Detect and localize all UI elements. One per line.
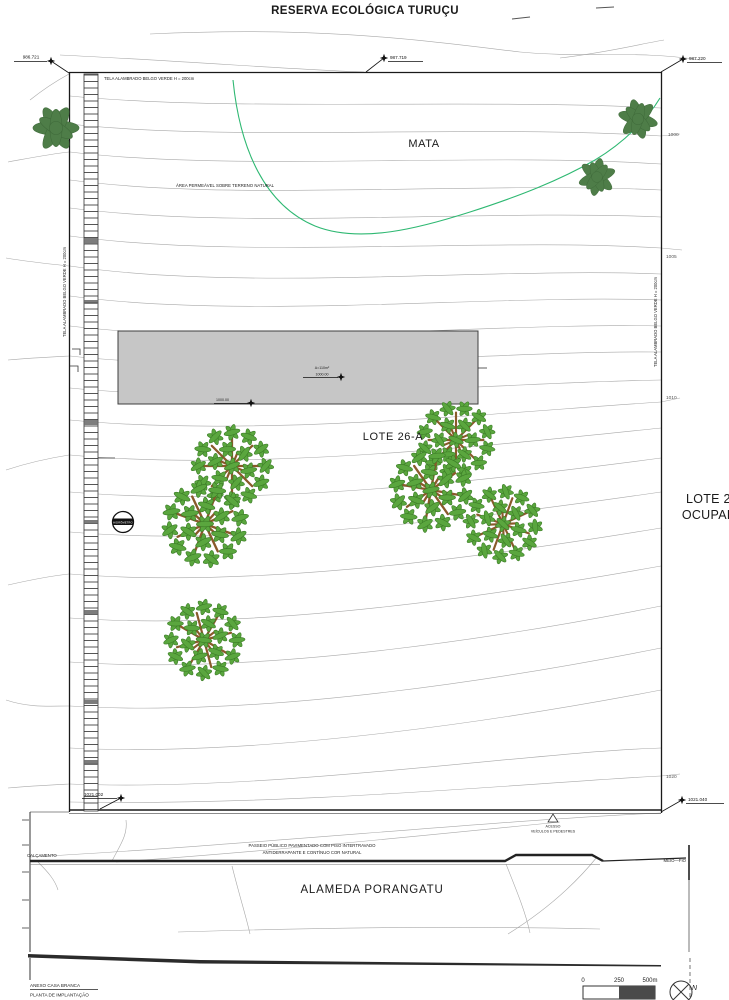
permeable-area-label: ÁREA PERMEÁVEL SOBRE TERRENO NATURAL [176,183,275,188]
canopy-trees [144,379,560,699]
contour-label-1005: 1005 [666,254,677,260]
vegetation-limit-line [233,80,660,234]
lote-25-label-line2: OCUPADO [682,508,729,522]
contour-elevation-labels: 1000 1005 1010 1020 [666,132,679,780]
sidewalk-note-line2: ANTIDERRAPANTE E CONTÍNUO COR NATURAL [263,850,362,855]
water-meter-symbol: HIDRÔMETRO [113,512,134,533]
building-area-label: A=110m² [315,366,330,370]
site-plan-drawing: A=110m² 1000.00 1000.00 HIDRÔMETRO 986.7… [0,0,729,1000]
border-dashes [512,7,614,19]
contour-label-1000: 1000 [668,132,679,138]
road-edge-wedge [28,954,661,967]
survey-label-top-mid: 987.719 [390,55,407,60]
curb-line [30,855,603,861]
access-label-line2: VEÍCULOS E PEDESTRES [531,830,576,834]
access-triangle-icon [548,814,558,822]
contour-label-1010: 1010 [666,395,677,401]
street-name-label: ALAMEDA PORANGATU [300,884,443,896]
scale-bar: 0 250 500m [581,978,657,999]
street-zone: ACESSO VEÍCULOS E PEDESTRES PASSEIO PÚBL… [22,812,690,998]
contour-label-1020: 1020 [666,774,677,780]
north-arrow-icon: N [670,981,698,1000]
building-level-label: 1000.00 [316,373,329,377]
tree-icon [33,104,79,151]
survey-label-top-left: 986.721 [23,55,40,60]
survey-label-top-right: 987.220 [689,56,706,61]
scale-zero-label: 0 [581,978,585,984]
fence-label-left: TELA ALAMBRADO BELGO VERDE H = 200cm [62,246,67,337]
drawing-title: RESERVA ECOLÓGICA TURUÇU [271,4,459,17]
north-letter: N [692,985,698,992]
site-plan-canvas: A=110m² 1000.00 1000.00 HIDRÔMETRO 986.7… [0,0,729,1000]
access-label-line1: ACESSO [546,825,561,829]
title-block-line2: PLANTA DE IMPLANTAÇÃO [30,992,89,998]
calcamento-label: CALÇAMENTO [27,853,57,858]
lote-25-label-line1: LOTE 25 [686,492,729,506]
title-block: ANEXO CASA BRANCA PLANTA DE IMPLANTAÇÃO [30,983,98,998]
sidewalk-note-line1: PASSEIO PÚBLICO PAVIMENTADO COM PISO INT… [249,843,377,848]
title-block-line1: ANEXO CASA BRANCA [30,983,81,988]
front-level-label: 1000.00 [216,398,229,402]
tree-icon [144,579,263,698]
meio-fio-label: MEIO—FIO [664,858,687,863]
fence-label-right: TELA ALAMBRADO BELGO VERDE H = 200cm [653,276,658,367]
lot-boundary [30,72,662,814]
lote-26a-label: LOTE 26-A [363,431,423,443]
scale-max-label: 500m [642,978,657,984]
survey-label-bottom-left: 1021.002 [84,792,104,797]
building-footprint: A=110m² 1000.00 [70,331,487,404]
scale-mid-label: 250 [614,978,625,984]
fence-label-top: TELA ALAMBRADO BELGO VERDE H = 200cm [104,76,195,81]
survey-label-bottom-right: 1021.040 [688,797,708,802]
mata-label: MATA [408,138,439,150]
tree-icon [613,94,662,144]
